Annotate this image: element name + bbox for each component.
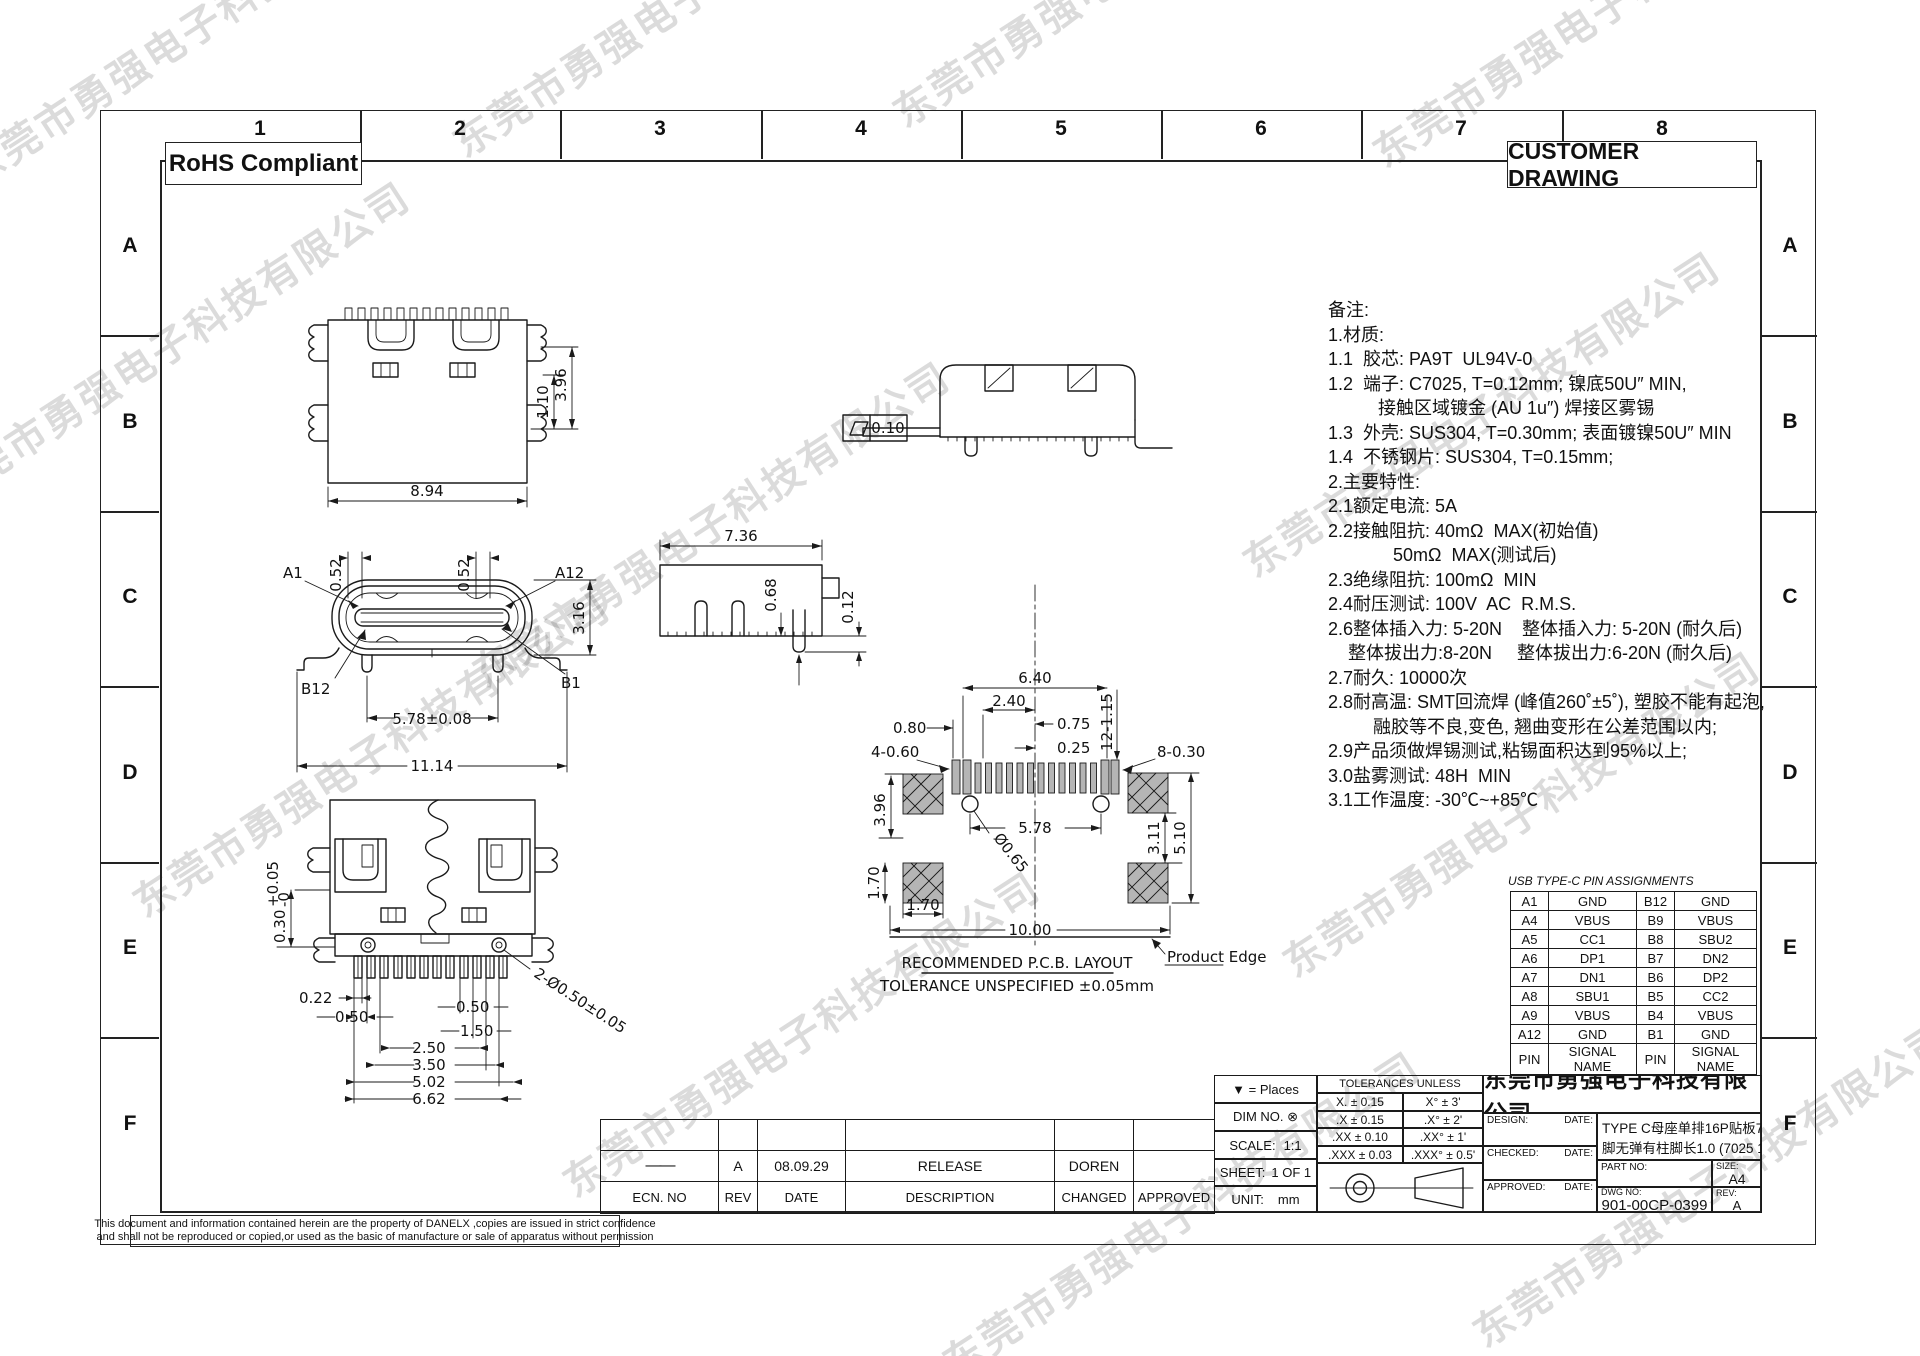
rev-description: RELEASE [846,1151,1055,1182]
dim-311: 3.11 [1145,821,1163,854]
tb-part-no: PART NO: [1597,1160,1712,1187]
grid-col-label: 7 [1431,117,1491,141]
note-line: 2.8耐高温: SMT回流焊 (峰值260˚±5˚), 塑胶不能有起泡, [1328,690,1773,715]
dim-502: 5.02 [412,1073,445,1091]
tb-tol: .XXX ± 0.03 [1317,1146,1403,1163]
grid-row-label: A [104,234,156,258]
pcb-layout-title: RECOMMENDED P.C.B. LAYOUT [902,954,1134,972]
tb-product-title: TYPE C母座单排16P贴板7.35长四 脚无弹有柱脚长1.0 (7025 1… [1597,1113,1762,1160]
customer-drawing-page: 东莞市勇强电子科技有限公司 东莞市勇强电子科技有限公司 东莞市勇强电子科技有限公… [0,0,1920,1356]
grid-tick [101,511,159,513]
grid-row-label: E [1764,936,1816,960]
note-line: 2.6整体插入力: 5-20N 整体插入力: 5-20N (耐久后) [1328,617,1773,642]
note-line: 2.9产品须做焊锡测试,粘锡面积达到95%以上; [1328,739,1773,764]
disclaimer: This document and information contained … [130,1215,620,1247]
tb-tol: X° ± 3' [1403,1093,1483,1111]
rev-changed: DOREN [1055,1151,1134,1182]
grid-tick [560,111,562,159]
dim-052-left: 0.52 [327,558,345,591]
dim-350: 3.50 [412,1056,445,1074]
notes: 备注: 1.材质: 1.1 胶芯: PA9T UL94V-0 1.2 端子: C… [1328,298,1773,813]
tb-tol: .X° ± 2' [1403,1111,1483,1128]
note-line: 2.主要特性: [1328,470,1773,495]
note-line: 2.4耐压测试: 100V AC R.M.S. [1328,592,1773,617]
pin-label-a12: A12 [555,564,584,582]
tb-dim-no: DIM NO. ⊗ [1214,1103,1317,1131]
grid-col-label: 5 [1031,117,1091,141]
note-line: 2.1额定电流: 5A [1328,494,1773,519]
grid-col-label: 2 [430,117,490,141]
note-line: 接触区域镀金 (AU 1u″) 焊接区雾锡 [1328,396,1773,421]
dim-12x115: 12-1.15 [1098,693,1116,751]
grid-col-label: 4 [831,117,891,141]
tb-places: ▼ = Places [1214,1075,1317,1103]
pcb-hole-left [962,796,978,812]
grid-row-label: F [1764,1112,1816,1136]
rohs-compliant-badge: RoHS Compliant [165,142,362,185]
dim-050-right: 0.50 [456,998,489,1016]
dim-240: 2.40 [992,692,1025,710]
dim-hole: 2-Ø0.50±0.05 [531,964,630,1037]
view-pcb-layout: 6.40 2.40 0.75 0.25 0.80 4-0.60 8-0.30 1… [865,570,1325,1050]
view-front: A1 A12 B12 B1 0.52 0.52 3.16 5.78±0.08 1… [235,500,615,810]
grid-row-label: A [1764,234,1816,258]
pin-assignments-table: A1GNDB12GND A4VBUSB9VBUS A5CC1B8SBU2 A6D… [1510,891,1757,1075]
dim-052-right: 0.52 [455,558,473,591]
tb-dwg-no: DWG NO: 901-00CP-0399 [1597,1187,1712,1213]
grid-row-label: E [104,936,156,960]
note-line: 50mΩ MAX(测试后) [1328,543,1773,568]
tb-company: 东莞市勇强电子科技有限公司 [1483,1075,1762,1113]
dim-1114: 11.14 [411,757,454,775]
rev-approved [1134,1151,1215,1182]
dim-250: 2.50 [412,1039,445,1057]
svg-text:0.30: 0.30 [271,910,289,943]
pcb-pads [952,760,1119,794]
note-line: 2.3绝缘阻抗: 100mΩ MIN [1328,568,1773,593]
note-line: 1.3 外壳: SUS304, T=0.30mm; 表面镀镍50U″ MIN [1328,421,1773,446]
tb-tol-header: TOLERANCES UNLESS [1317,1075,1483,1093]
pin-label-b12: B12 [301,680,330,698]
dim-170h: 1.70 [906,896,939,914]
tb-tol: .XX ± 0.10 [1317,1128,1403,1146]
pin-label-a1: A1 [283,564,303,582]
dim-894: 8.94 [410,482,443,500]
dim-578: 5.78 [1018,819,1051,837]
grid-tick [961,111,963,159]
tb-rev: REV: A [1712,1187,1762,1213]
view-bottom: 0.22 0.50 0.50 1.50 2.50 3.50 5.02 6.62 … [225,785,655,1145]
third-angle-projection-icon [1318,1164,1482,1212]
grid-row-label: B [104,410,156,434]
tb-tol: .XXX° ± 0.5' [1403,1146,1483,1163]
pin-table-title: USB TYPE-C PIN ASSIGNMENTS [1508,874,1758,888]
rev-date: 08.09.29 [758,1151,846,1182]
grid-col-label: 6 [1231,117,1291,141]
pcb-layout-tolerance: TOLERANCE UNSPECIFIED ±0.05mm [879,977,1154,995]
note-line: 1.材质: [1328,323,1773,348]
note-line: 整体拔出力:8-20N 整体拔出力:6-20N (耐久后) [1328,641,1773,666]
dim-080: 0.80 [893,719,926,737]
tb-tol: X. ± 0.15 [1317,1093,1403,1111]
dim-316: 3.16 [570,601,588,634]
bottom-pins [354,956,507,978]
grid-tick [1762,862,1817,864]
grid-tick [101,862,159,864]
dim-4x060: 4-0.60 [871,743,919,761]
tb-checked: CHECKED: DATE: [1483,1146,1597,1180]
dim-8x030: 8-0.30 [1157,743,1205,761]
grid-tick [1762,1037,1817,1039]
tb-tol: .X ± 0.15 [1317,1111,1403,1128]
svg-text:-0: -0 [275,892,293,907]
pin-label-b1: B1 [561,674,581,692]
grid-col-label: 3 [630,117,690,141]
grid-tick [101,335,159,337]
dim-075: 0.75 [1057,715,1090,733]
note-line: 备注: [1328,298,1773,323]
dim-012: 0.12 [839,590,857,623]
dim-396: 3.96 [871,793,889,826]
view-top: 8.94 1.10 3.96 [250,235,580,535]
dim-662: 6.62 [412,1090,445,1108]
note-line: 1.4 不锈钢片: SUS304, T=0.15mm; [1328,445,1773,470]
tb-scale: SCALE:1:1 [1214,1131,1317,1159]
grid-row-label: D [104,761,156,785]
note-line: 1.1 胶芯: PA9T UL94V-0 [1328,347,1773,372]
note-line: 1.2 端子: C7025, T=0.12mm; 镍底50U″ MIN, [1328,372,1773,397]
note-line: 3.1工作温度: -30℃~+85℃ [1328,788,1773,813]
dim-025: 0.25 [1057,739,1090,757]
rev-rev: A [719,1151,758,1182]
dim-022: 0.22 [299,989,332,1007]
grid-tick [101,1037,159,1039]
dim-396: 3.96 [552,368,570,401]
dim-578: 5.78±0.08 [392,710,471,728]
grid-tick [101,686,159,688]
tb-unit: UNIT:mm [1214,1186,1317,1213]
view-side-a: 0.10 [840,335,1200,470]
tb-design: DESIGN: DATE: [1483,1113,1597,1146]
dim-170v: 1.70 [865,866,883,899]
tb-approved: APPROVED: DATE: [1483,1180,1597,1213]
grid-col-label: 1 [230,117,290,141]
grid-tick [1161,111,1163,159]
customer-drawing-title: CUSTOMER DRAWING [1507,141,1757,188]
dim-150: 1.50 [460,1022,493,1040]
dim-068: 0.68 [762,578,780,611]
product-edge-label: Product Edge [1167,948,1266,966]
dim-030-tol: 0.30 +0.05 -0 [264,861,293,943]
grid-row-label: C [104,585,156,609]
pcb-mount-pads [903,773,1168,903]
grid-tick [761,111,763,159]
tb-sheet: SHEET:1 OF 1 [1214,1159,1317,1186]
dim-1000: 10.00 [1009,921,1052,939]
rev-ecn: —— [601,1151,719,1182]
dim-736: 7.36 [724,527,757,545]
dim-510: 5.10 [1171,821,1189,854]
tb-tol: .XX° ± 1' [1403,1128,1483,1146]
note-line: 融胶等不良,变色, 翘曲变形在公差范围以内; [1328,715,1773,740]
grid-row-label: F [104,1112,156,1136]
dim-640: 6.40 [1018,669,1051,687]
note-line: 2.2接触阻抗: 40mΩ MAX(初始值) [1328,519,1773,544]
revision-table: —— A 08.09.29 RELEASE DOREN ECN. NO REV … [600,1119,1215,1214]
tb-projection-symbol [1317,1163,1483,1213]
tb-size: SIZE: A4 [1712,1160,1762,1187]
dim-110: 1.10 [534,385,552,418]
grid-tick [1361,111,1363,159]
note-line: 3.0盐雾测试: 48H MIN [1328,764,1773,789]
pcb-hole-right [1093,796,1109,812]
note-line: 2.7耐久: 10000次 [1328,666,1773,691]
